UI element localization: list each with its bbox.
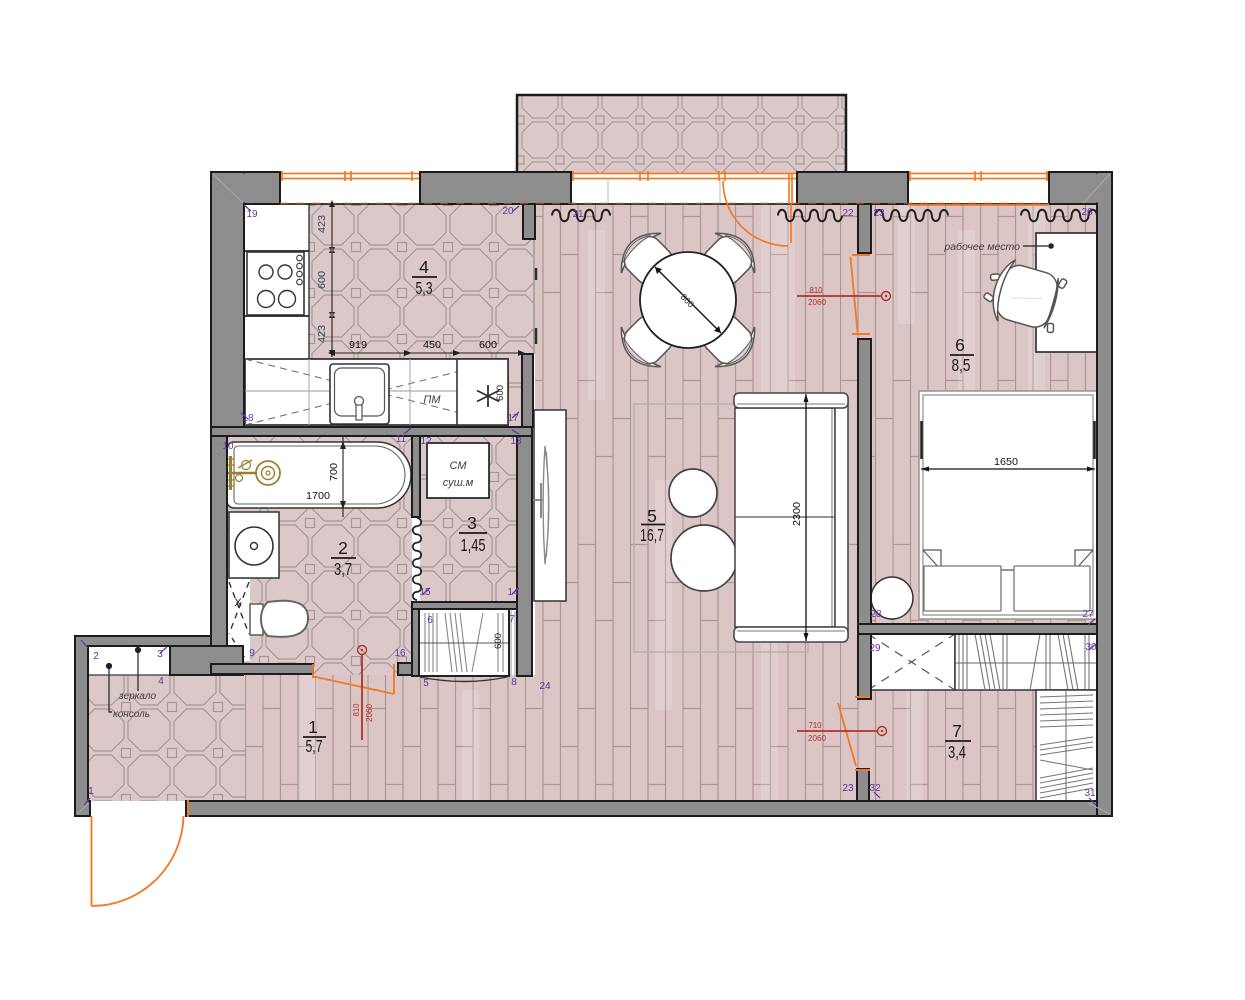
svg-text:суш.м: суш.м [443,477,474,489]
svg-text:23: 23 [873,208,885,219]
svg-text:10: 10 [222,441,234,452]
svg-text:16: 16 [394,648,406,659]
svg-text:17: 17 [507,413,519,424]
svg-text:919: 919 [349,340,367,351]
svg-text:21: 21 [572,209,584,220]
svg-text:6: 6 [955,335,965,355]
svg-text:12: 12 [420,436,432,447]
svg-text:450: 450 [423,340,441,351]
svg-text:1700: 1700 [306,491,330,502]
svg-text:2060: 2060 [808,297,826,307]
svg-text:1: 1 [308,717,318,737]
svg-text:6: 6 [427,615,433,626]
svg-text:2060: 2060 [364,704,374,722]
svg-text:7: 7 [509,614,515,625]
svg-text:600: 600 [479,340,497,351]
svg-text:X: X [234,597,242,609]
svg-text:16,7: 16,7 [640,525,664,545]
svg-text:600: 600 [495,385,505,401]
svg-text:22: 22 [842,208,854,219]
svg-text:810: 810 [351,703,361,716]
svg-text:28: 28 [870,609,882,620]
svg-text:зеркало: зеркало [118,691,156,702]
svg-text:1,45: 1,45 [461,535,486,555]
svg-text:1: 1 [88,786,94,797]
svg-text:710: 710 [809,720,822,730]
svg-text:3,4: 3,4 [948,742,966,762]
svg-text:24: 24 [539,681,551,692]
svg-text:рабочее место: рабочее место [943,241,1020,253]
svg-text:23: 23 [842,783,854,794]
svg-text:8,5: 8,5 [952,355,971,375]
svg-text:423: 423 [317,215,328,233]
svg-text:2300: 2300 [792,502,803,526]
svg-text:31: 31 [1084,788,1096,799]
svg-text:консоль: консоль [113,709,150,720]
svg-text:11: 11 [396,434,407,445]
svg-text:9: 9 [249,648,255,659]
svg-text:600: 600 [317,271,328,289]
svg-text:1650: 1650 [994,457,1018,468]
svg-text:2060: 2060 [808,733,826,743]
svg-text:2: 2 [338,538,348,558]
svg-text:13: 13 [510,436,522,447]
svg-text:19: 19 [246,209,258,220]
svg-text:ПМ: ПМ [423,394,441,406]
svg-text:3,7: 3,7 [334,559,352,579]
svg-text:5: 5 [423,678,429,689]
svg-text:3: 3 [467,513,477,533]
svg-text:5: 5 [647,506,657,526]
svg-text:27: 27 [1082,609,1094,620]
svg-text:2: 2 [93,651,99,662]
svg-text:423: 423 [317,325,328,343]
svg-text:4: 4 [158,676,164,687]
svg-text:600: 600 [493,633,503,649]
svg-text:29: 29 [869,643,881,654]
svg-text:700: 700 [329,463,340,481]
svg-text:СМ: СМ [450,460,468,472]
svg-text:26: 26 [1081,207,1093,218]
svg-text:32: 32 [869,783,881,794]
svg-text:810: 810 [810,285,823,295]
svg-text:5,7: 5,7 [306,736,323,756]
svg-text:4: 4 [419,257,429,277]
svg-text:7: 7 [952,721,962,741]
svg-text:8: 8 [511,677,517,688]
svg-text:5,3: 5,3 [416,278,433,298]
